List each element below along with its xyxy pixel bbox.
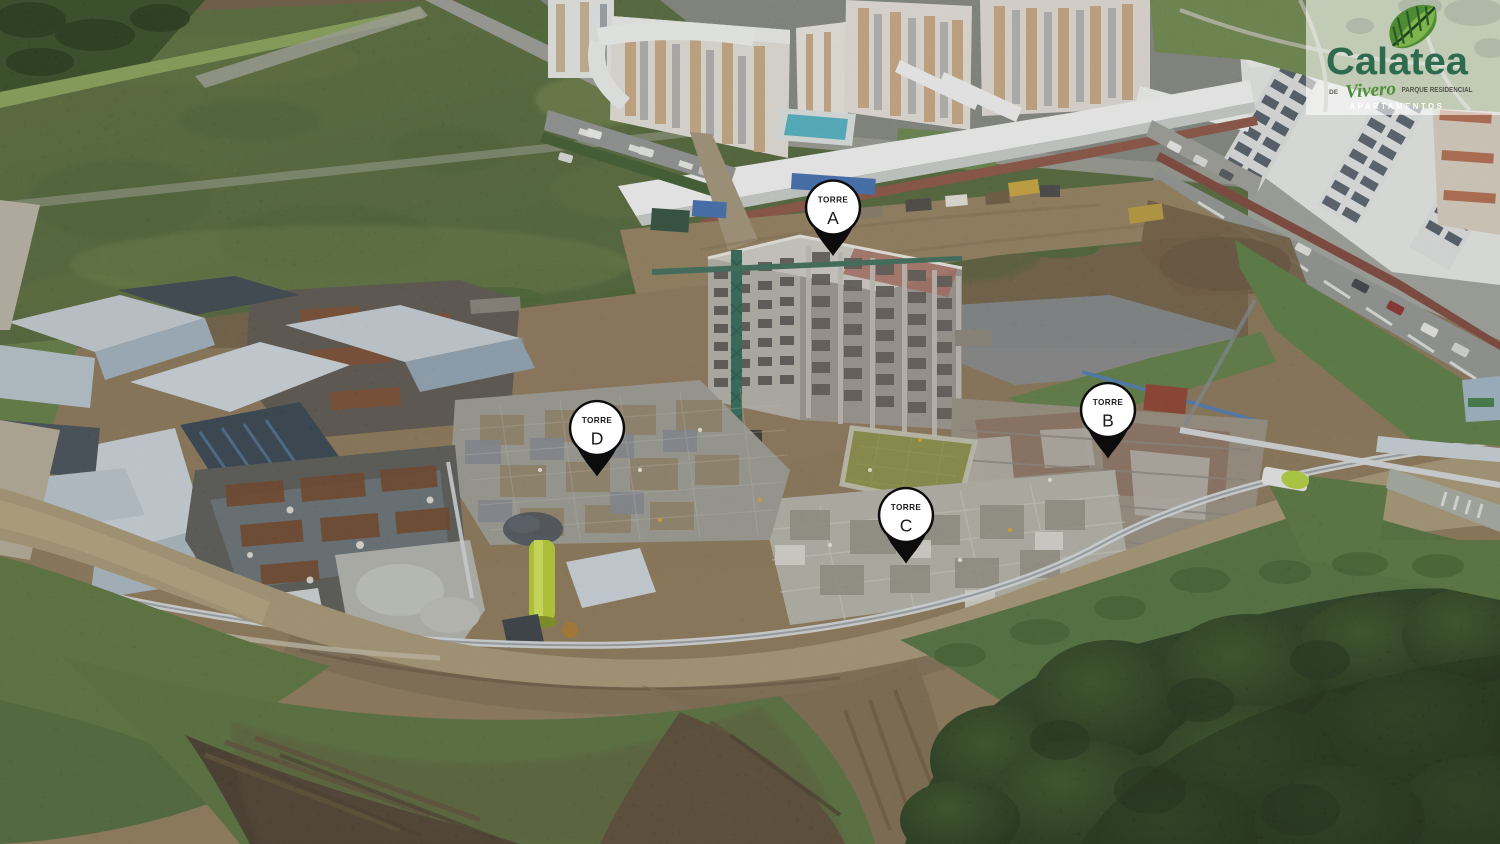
svg-text:TORRE: TORRE	[818, 196, 849, 205]
svg-text:B: B	[1102, 411, 1114, 431]
svg-text:TORRE: TORRE	[582, 416, 613, 425]
svg-text:Vivero: Vivero	[1345, 78, 1397, 102]
svg-text:TORRE: TORRE	[891, 503, 922, 512]
svg-text:A: A	[827, 208, 839, 228]
svg-text:Calatea: Calatea	[1326, 41, 1469, 83]
svg-text:D: D	[591, 429, 604, 449]
svg-text:TORRE: TORRE	[1093, 398, 1124, 407]
svg-text:DE: DE	[1329, 89, 1339, 96]
svg-text:PARQUE RESIDENCIAL: PARQUE RESIDENCIAL	[1402, 87, 1474, 94]
svg-text:C: C	[900, 516, 913, 536]
svg-text:APARTAMENTOS: APARTAMENTOS	[1350, 101, 1445, 111]
